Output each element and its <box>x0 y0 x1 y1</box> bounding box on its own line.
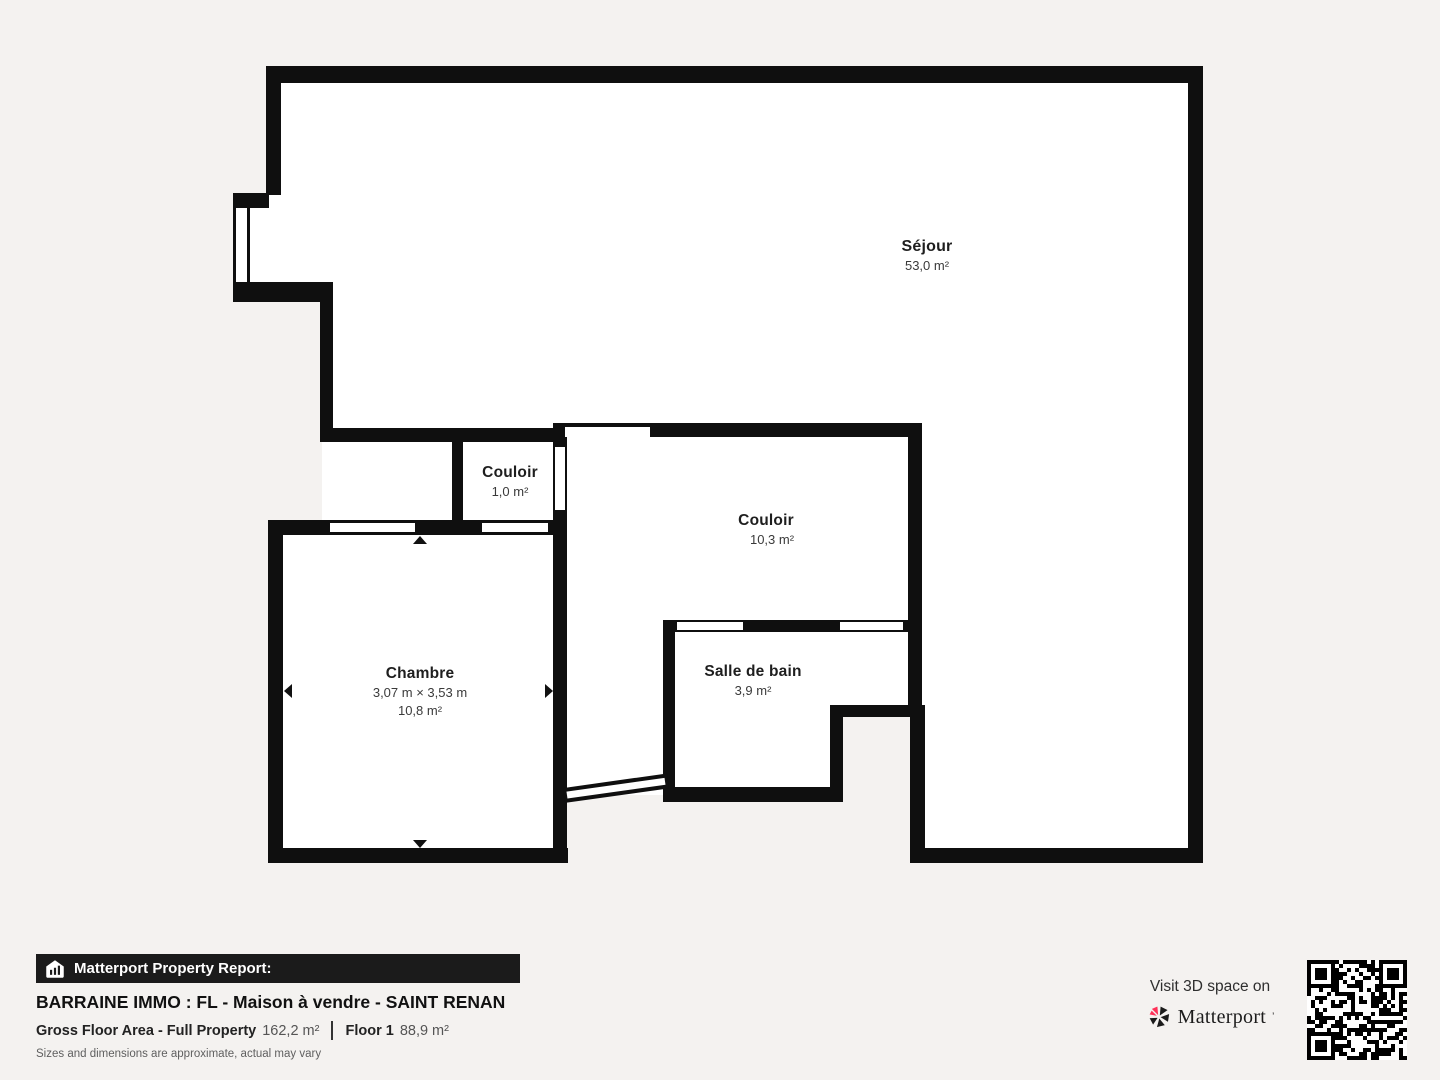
floor-value: 88,9 m² <box>400 1023 449 1039</box>
wall-chambre-bottom <box>268 848 568 863</box>
wall-sejour-bottom-left <box>322 428 560 442</box>
wall-chambre-left <box>268 520 283 863</box>
dim-arrow-left <box>284 684 292 698</box>
label-sdb-area: 3,9 m² <box>735 683 772 698</box>
room-sejour-mid <box>333 302 1188 428</box>
wall-notch-bottom <box>233 282 333 302</box>
label-chambre: Chambre <box>386 665 455 683</box>
wall-upper-left <box>266 66 281 195</box>
wall-notch-top-step <box>233 193 269 208</box>
label-chambre-area: 10,8 m² <box>398 703 442 718</box>
report-header-label: Matterport Property Report: <box>74 960 272 977</box>
area-summary: Gross Floor Area - Full Property 162,2 m… <box>36 1021 449 1040</box>
room-salle-de-bain-lower <box>675 705 830 787</box>
dim-arrow-up <box>413 536 427 544</box>
matterport-house-icon <box>45 959 65 979</box>
window-left-edge-b <box>247 208 250 282</box>
matterport-pinwheel-icon <box>1146 1004 1172 1030</box>
wall-right <box>1188 66 1203 863</box>
wall-couloir-right <box>908 423 922 717</box>
qr-code <box>1307 960 1407 1060</box>
opening-sdb-right <box>840 622 903 630</box>
room-couloir-arm <box>567 620 675 795</box>
wall-top <box>266 66 1203 83</box>
trademark-tick: ʼ <box>1272 1012 1274 1023</box>
floorplan: Séjour 53,0 m² Couloir 1,0 m² Couloir 10… <box>0 0 1440 920</box>
wall-couloir-small-left <box>452 435 463 535</box>
room-couloir <box>567 437 908 632</box>
separator <box>331 1021 333 1040</box>
disclaimer: Sizes and dimensions are approximate, ac… <box>36 1048 321 1060</box>
report-header-bar: Matterport Property Report: <box>36 954 520 983</box>
matterport-floorplan-report: Séjour 53,0 m² Couloir 1,0 m² Couloir 10… <box>0 0 1440 1080</box>
wall-bottom-right <box>912 848 1203 863</box>
matterport-wordmark: Matterport <box>1178 1006 1267 1029</box>
window-left-edge-a <box>233 208 236 282</box>
door-sdb <box>677 622 743 630</box>
room-sejour <box>266 83 1188 302</box>
label-couloir-small: Couloir <box>482 464 538 482</box>
label-couloir-area: 10,3 m² <box>750 532 794 547</box>
report-title: BARRAINE IMMO : FL - Maison à vendre - S… <box>36 992 505 1013</box>
gross-floor-label: Gross Floor Area - Full Property <box>36 1023 256 1039</box>
label-chambre-dims: 3,07 m × 3,53 m <box>373 685 467 700</box>
dim-arrow-right <box>545 684 553 698</box>
room-sejour-right <box>920 428 1188 848</box>
label-sejour-area: 53,0 m² <box>905 258 949 273</box>
wall-sdb-bottom <box>663 787 843 802</box>
floor-label: Floor 1 <box>345 1023 393 1039</box>
opening-couloirs-edge-b <box>565 447 567 510</box>
gross-floor-value: 162,2 m² <box>262 1023 319 1039</box>
wall-notch-vertical <box>910 705 925 863</box>
door-chambre <box>330 523 415 532</box>
label-sejour: Séjour <box>902 238 953 256</box>
opening-couloirs-edge-a <box>553 447 555 510</box>
visit-3d-cta: Visit 3D space on Matterportʼ <box>1140 978 1280 1030</box>
label-couloir: Couloir <box>738 512 794 530</box>
wall-mid-vertical <box>320 282 333 442</box>
label-couloir-small-area: 1,0 m² <box>492 484 529 499</box>
wall-notch-step <box>843 705 912 717</box>
visit-3d-text: Visit 3D space on <box>1140 978 1280 996</box>
window-couloir-small <box>482 523 548 532</box>
door-sejour-couloir <box>565 427 650 437</box>
label-sdb: Salle de bain <box>704 663 801 681</box>
dim-arrow-down <box>413 840 427 848</box>
